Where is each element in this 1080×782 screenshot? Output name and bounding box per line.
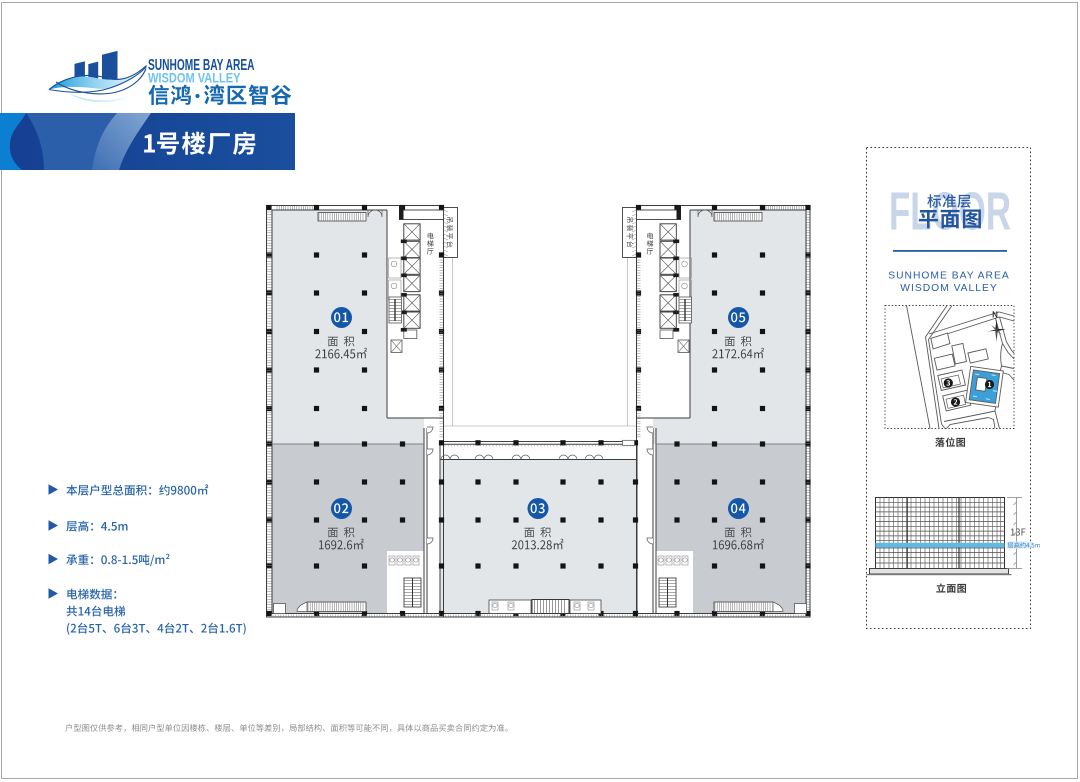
svg-text:WISDOM VALLEY: WISDOM VALLEY bbox=[148, 70, 241, 86]
svg-text:SUNHOME BAY AREA: SUNHOME BAY AREA bbox=[888, 271, 1009, 282]
svg-text:WISDOM VALLEY: WISDOM VALLEY bbox=[900, 283, 998, 294]
